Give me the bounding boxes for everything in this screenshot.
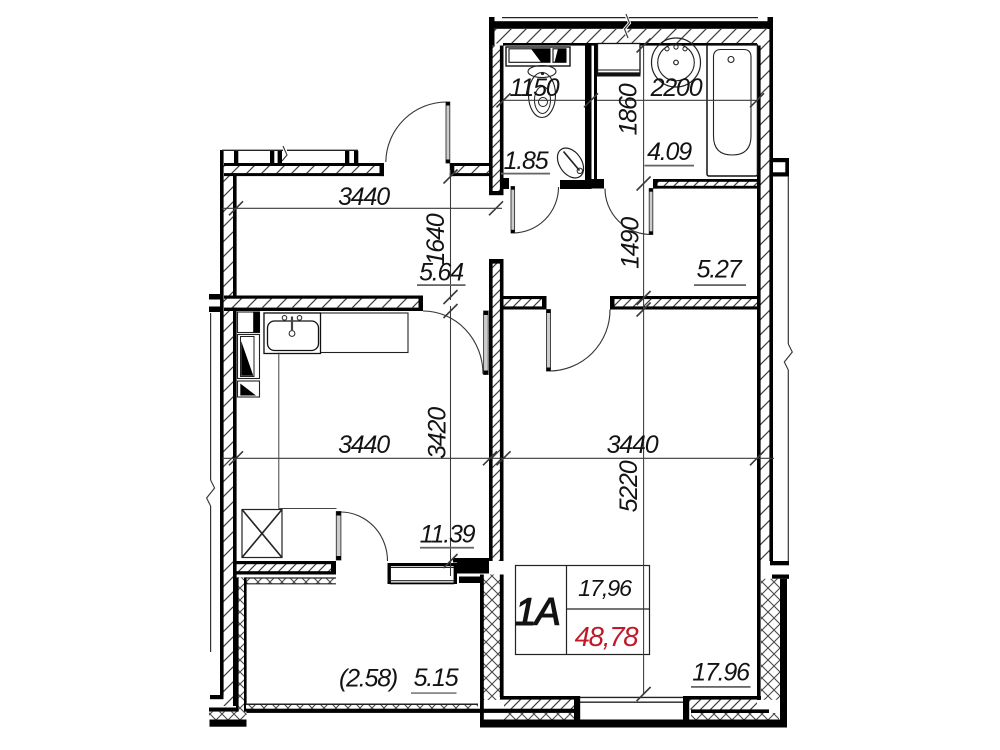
svg-text:1A: 1A bbox=[515, 591, 560, 634]
svg-text:3440: 3440 bbox=[607, 431, 659, 459]
svg-text:5220: 5220 bbox=[615, 460, 643, 512]
svg-text:11.39: 11.39 bbox=[420, 521, 476, 549]
svg-text:1860: 1860 bbox=[615, 83, 643, 135]
svg-text:3440: 3440 bbox=[338, 183, 390, 211]
svg-text:48,78: 48,78 bbox=[575, 621, 640, 652]
svg-text:17.96: 17.96 bbox=[692, 659, 750, 687]
svg-text:1150: 1150 bbox=[510, 74, 560, 102]
svg-text:5.15: 5.15 bbox=[414, 664, 459, 692]
svg-text:1490: 1490 bbox=[617, 217, 645, 269]
svg-text:3420: 3420 bbox=[424, 407, 452, 459]
svg-text:(2.58): (2.58) bbox=[339, 665, 397, 693]
svg-text:17,96: 17,96 bbox=[578, 575, 633, 601]
svg-text:5.64: 5.64 bbox=[419, 259, 463, 287]
svg-text:1.85: 1.85 bbox=[504, 147, 549, 175]
svg-text:5.27: 5.27 bbox=[697, 256, 743, 284]
svg-text:2200: 2200 bbox=[650, 74, 703, 102]
svg-text:4.09: 4.09 bbox=[647, 138, 692, 166]
svg-text:3440: 3440 bbox=[338, 431, 390, 459]
